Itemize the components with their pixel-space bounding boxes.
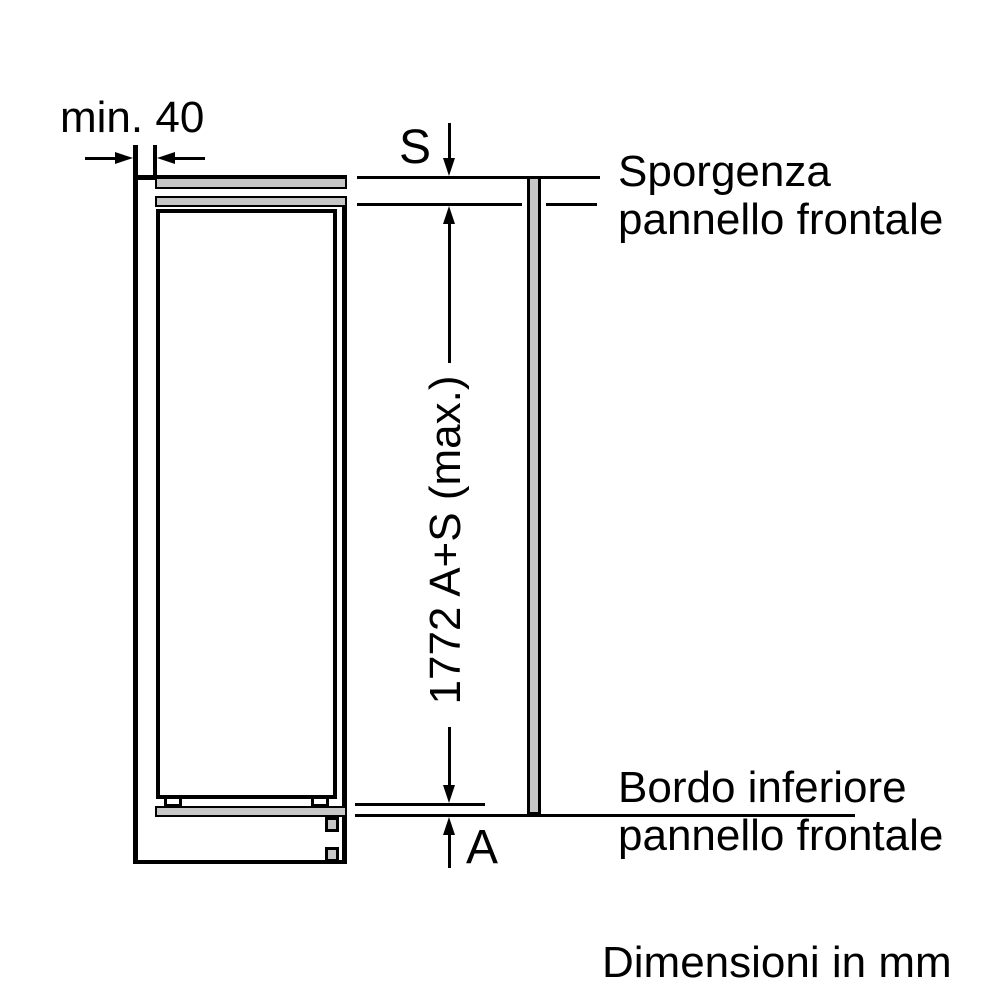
niche-front-edge	[342, 204, 347, 860]
niche-bottom-line	[133, 860, 347, 865]
min-gap-arrow-left-head-icon	[115, 152, 133, 164]
installation-diagram: min. 40 S A 1772 A+S (max.) Sporgenza pa…	[0, 0, 1000, 1000]
appliance-door	[156, 209, 338, 799]
min-gap-arrow-left-shaft	[85, 157, 116, 160]
callout-top-line2: pannello frontale	[618, 196, 943, 244]
front-panel-bar	[527, 176, 541, 815]
ref-line-cabinet-top	[357, 203, 522, 206]
bottom-offset-a-label: A	[466, 824, 498, 872]
top-trim-strip-upper	[155, 177, 347, 189]
units-note: Dimensioni in mm	[602, 941, 952, 985]
niche-left-wall	[133, 145, 138, 863]
top-trim-strip-lower	[155, 196, 347, 207]
min-gap-arrow-right-head-icon	[157, 152, 175, 164]
height-arrow-bottom-shaft	[448, 727, 451, 785]
callout-top-line1: Sporgenza	[618, 148, 943, 196]
ref-line-cabinet-top-right	[546, 203, 597, 206]
callout-bottom-line2: pannello frontale	[618, 812, 943, 860]
min-gap-label: min. 40	[60, 96, 204, 140]
s-arrow-head-icon	[443, 158, 455, 176]
ref-line-door-bottom	[355, 803, 485, 806]
callout-bottom-line1: Bordo inferiore	[618, 764, 943, 812]
a-arrow-shaft	[448, 833, 451, 868]
plinth-block-upper	[325, 817, 339, 832]
ref-line-panel-bottom	[355, 814, 855, 817]
ref-line-panel-top	[357, 176, 600, 179]
height-arrow-bottom-head-icon	[443, 785, 455, 803]
callout-bottom: Bordo inferiore pannello frontale	[618, 764, 943, 860]
base-strip	[155, 806, 347, 817]
plinth-block-lower	[325, 847, 339, 862]
height-arrow-top-shaft	[448, 222, 451, 363]
protrusion-s-label: S	[399, 124, 431, 172]
s-arrow-shaft	[448, 123, 451, 160]
callout-top: Sporgenza pannello frontale	[618, 148, 943, 244]
min-gap-arrow-right-shaft	[174, 157, 205, 160]
overall-height-label: 1772 A+S (max.)	[424, 376, 468, 705]
